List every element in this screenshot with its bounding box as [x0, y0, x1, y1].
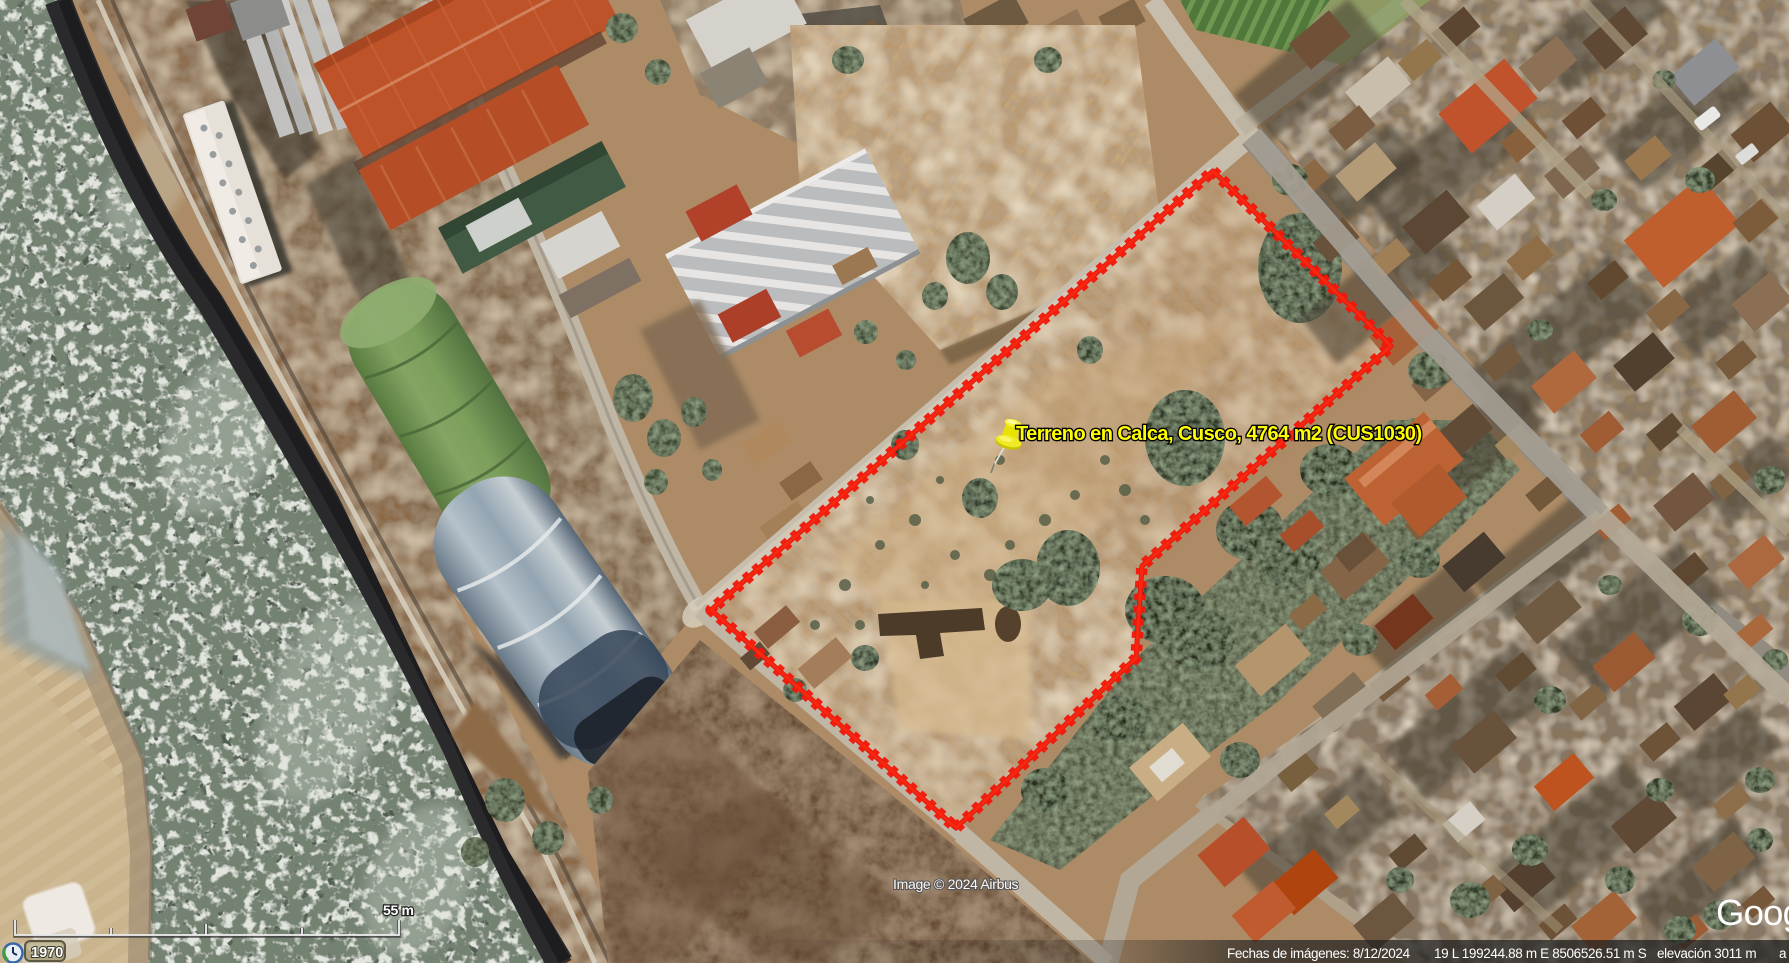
svg-text:Goog: Goog	[1716, 892, 1789, 933]
svg-text:elevación 3011 m: elevación 3011 m	[1657, 946, 1756, 961]
svg-text:19 L 199244.88 m E 8506526.51: 19 L 199244.88 m E 8506526.51 m S	[1434, 946, 1647, 961]
svg-text:Terreno en Calca, Cusco, 4764: Terreno en Calca, Cusco, 4764 m2 (CUS103…	[1016, 423, 1422, 445]
svg-text:1970: 1970	[31, 945, 63, 961]
svg-text:Fechas de imágenes: 8/12/2024: Fechas de imágenes: 8/12/2024	[1227, 946, 1411, 961]
svg-text:Image © 2024 Airbus: Image © 2024 Airbus	[893, 876, 1019, 892]
svg-text:55 m: 55 m	[383, 902, 414, 918]
svg-text:a: a	[1779, 946, 1787, 961]
